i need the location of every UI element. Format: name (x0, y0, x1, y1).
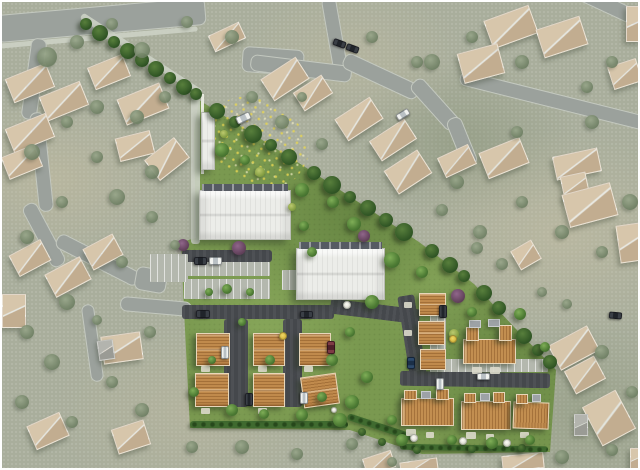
site-tree (205, 288, 213, 296)
hedge-tree (442, 257, 458, 273)
new-house (195, 373, 229, 407)
background-tree (225, 30, 239, 44)
hedge-tree (516, 328, 532, 344)
site-tree (347, 217, 361, 231)
hedge-tree (378, 438, 386, 446)
background-tree (346, 438, 358, 450)
site-tree (215, 143, 229, 157)
street-ne-b (340, 51, 422, 101)
car (245, 393, 253, 406)
site-tree (361, 371, 373, 383)
site-tree (387, 415, 397, 425)
site-tree (525, 435, 535, 445)
existing-house (399, 457, 438, 468)
site-tree (238, 318, 246, 326)
background-tree (134, 42, 150, 58)
existing-house (510, 239, 542, 270)
background-tree (316, 138, 328, 150)
background-tree (170, 240, 180, 250)
background-tree (44, 354, 60, 370)
existing-house (478, 137, 529, 179)
existing-house (582, 390, 636, 447)
site-tree (295, 183, 309, 197)
background-tree (116, 256, 128, 268)
parasol (449, 335, 457, 343)
background-tree (66, 416, 78, 428)
existing-house (87, 54, 131, 90)
background-tree (496, 258, 508, 270)
hedge-tree (425, 244, 439, 258)
existing-garage (574, 414, 588, 436)
car (477, 373, 490, 380)
hedge-tree (281, 149, 297, 165)
hedge-tree (358, 428, 366, 436)
background-tree (424, 54, 440, 70)
background-tree (59, 294, 75, 310)
background-tree (562, 299, 572, 309)
apartment-building-a (199, 190, 291, 240)
patio (490, 367, 500, 374)
accent-tree (358, 230, 370, 242)
background-tree (466, 31, 478, 43)
site-tree (189, 387, 199, 397)
rowhouse (461, 401, 511, 430)
carport (469, 320, 481, 328)
background-tree (70, 35, 84, 49)
background-tree (20, 325, 34, 339)
background-tree (450, 175, 464, 189)
patio (466, 432, 476, 439)
hedge-tree (164, 72, 176, 84)
site-tree (226, 404, 238, 416)
hedge-tree (476, 285, 492, 301)
existing-garage (97, 339, 116, 361)
site-tree (416, 266, 428, 278)
existing-house (626, 6, 638, 42)
accent-tree (255, 167, 265, 177)
car (300, 392, 308, 404)
car (345, 43, 360, 54)
background-tree (92, 315, 102, 325)
hedge-tree (190, 88, 202, 100)
background-tree (135, 403, 149, 417)
car (436, 378, 444, 390)
background-tree (144, 326, 156, 338)
background-tree (90, 100, 104, 114)
existing-house (630, 448, 638, 468)
hedge-tree (307, 166, 321, 180)
accent-tree (288, 203, 296, 211)
background-tree (436, 204, 448, 216)
background-tree (387, 457, 397, 467)
background-tree (595, 345, 609, 359)
background-tree (130, 110, 144, 124)
existing-house (384, 149, 433, 194)
site-tree (365, 295, 379, 309)
hedge-tree (209, 103, 225, 119)
parking-row (150, 254, 188, 282)
hedge-tree (518, 444, 526, 452)
site-tree (259, 409, 269, 419)
site-tree (317, 392, 327, 402)
site-tree (299, 221, 309, 231)
carport (488, 319, 500, 327)
rowhouse (516, 394, 528, 404)
background-tree (596, 246, 608, 258)
accent-tree (232, 241, 246, 255)
background-tree (37, 47, 57, 67)
rowhouse (404, 390, 417, 400)
hedge-tree (148, 61, 164, 77)
car (439, 305, 447, 318)
site-tree (208, 356, 216, 364)
parasol (343, 301, 351, 309)
narrow-outbuilding (201, 112, 215, 170)
background-tree (24, 144, 40, 160)
patio (404, 330, 412, 336)
rowhouse (436, 389, 449, 400)
background-tree (109, 189, 125, 205)
background-tree (366, 31, 378, 43)
background-tree (606, 56, 618, 68)
hedge-tree (468, 445, 476, 453)
hedge-tree (360, 200, 376, 216)
existing-house (26, 412, 69, 450)
car (609, 311, 623, 319)
car (194, 257, 207, 265)
rowhouse (464, 393, 476, 403)
site-tree (486, 437, 498, 449)
existing-house (334, 97, 383, 142)
background-tree (473, 225, 487, 239)
hedge-tree (108, 36, 120, 48)
entrance-strip (202, 184, 288, 191)
site-tree (384, 252, 400, 268)
background-tree (61, 116, 73, 128)
background-tree (516, 196, 528, 208)
parasol (503, 439, 511, 447)
existing-house (535, 16, 588, 59)
patio (426, 432, 434, 438)
hedge-tree (458, 270, 470, 282)
hedge-tree (92, 25, 108, 41)
existing-house (2, 294, 26, 328)
patio (201, 366, 210, 372)
hedge-tree (543, 355, 557, 369)
parasol (459, 437, 467, 445)
background-tree (471, 242, 483, 254)
background-tree (106, 376, 118, 388)
background-tree (581, 81, 593, 93)
existing-house (111, 419, 151, 454)
site-tree (246, 288, 254, 296)
background-tree (146, 211, 158, 223)
site-tree (240, 155, 250, 165)
background-tree (15, 395, 29, 409)
rowhouse (463, 339, 516, 364)
rowhouse (466, 327, 479, 341)
site-tree (333, 413, 347, 427)
site-tree (327, 196, 339, 208)
background-tree (291, 448, 303, 460)
site-tree (222, 284, 232, 294)
site-tree (326, 354, 338, 366)
site-tree (540, 342, 550, 352)
car (209, 257, 222, 265)
site-tree (265, 355, 275, 365)
rowhouse (401, 398, 454, 426)
car (196, 310, 210, 318)
background-tree (106, 18, 118, 30)
background-tree (235, 440, 249, 454)
background-tree (181, 16, 193, 28)
hedge-tree (379, 213, 393, 227)
existing-house (615, 223, 638, 264)
parasol (279, 332, 287, 340)
hedge-tree (492, 301, 506, 315)
background-tree (537, 287, 547, 297)
rowhouse (493, 392, 505, 403)
background-tree (246, 91, 258, 103)
hedge-tree (413, 446, 421, 454)
site-plan-screenshot (0, 0, 640, 470)
hedge-tree (80, 18, 92, 30)
site-tree (514, 308, 526, 320)
background-tree (275, 115, 289, 129)
hedge-tree (265, 139, 277, 151)
carport (532, 394, 541, 402)
car (221, 346, 229, 359)
background-tree (515, 55, 529, 69)
hedge-tree (323, 176, 341, 194)
background-tree (626, 386, 638, 398)
hedge-tree (395, 223, 413, 241)
site-tree (396, 434, 408, 446)
background-tree (622, 194, 638, 210)
rowhouse (499, 325, 512, 341)
background-tree (555, 225, 569, 239)
patio (404, 302, 412, 308)
existing-house (501, 452, 544, 468)
carport (421, 391, 431, 399)
new-house (418, 321, 445, 345)
background-tree (555, 450, 569, 464)
accent-tree (220, 130, 228, 138)
accent-tree (451, 289, 465, 303)
parasol (331, 407, 337, 413)
background-tree (56, 196, 68, 208)
site-tree (307, 247, 317, 257)
site-tree (447, 435, 457, 445)
patio (304, 366, 313, 372)
background-tree (411, 56, 423, 68)
existing-house (483, 5, 538, 50)
new-house (420, 349, 446, 370)
hedgerow (190, 421, 348, 428)
background-tree (91, 151, 103, 163)
aerial-photo (2, 2, 638, 468)
rowhouse (513, 401, 550, 429)
site-tree (345, 327, 355, 337)
patio (201, 408, 210, 414)
site-tree (296, 409, 308, 421)
background-tree (511, 126, 523, 138)
background-tree (585, 115, 599, 129)
new-house (253, 373, 285, 407)
patio (258, 366, 267, 372)
car (327, 341, 335, 354)
hedge-tree (244, 125, 262, 143)
hedge-tree (344, 191, 356, 203)
existing-house (457, 43, 506, 84)
site-tree (345, 395, 359, 409)
background-tree (186, 441, 198, 453)
site-tree (467, 307, 477, 317)
background-tree (606, 444, 618, 456)
background-tree (20, 230, 34, 244)
background-tree (297, 92, 307, 102)
parasol (410, 434, 418, 442)
car (300, 311, 313, 318)
car (407, 357, 415, 369)
background-tree (159, 91, 171, 103)
background-tree (145, 165, 159, 179)
carport (480, 393, 490, 401)
